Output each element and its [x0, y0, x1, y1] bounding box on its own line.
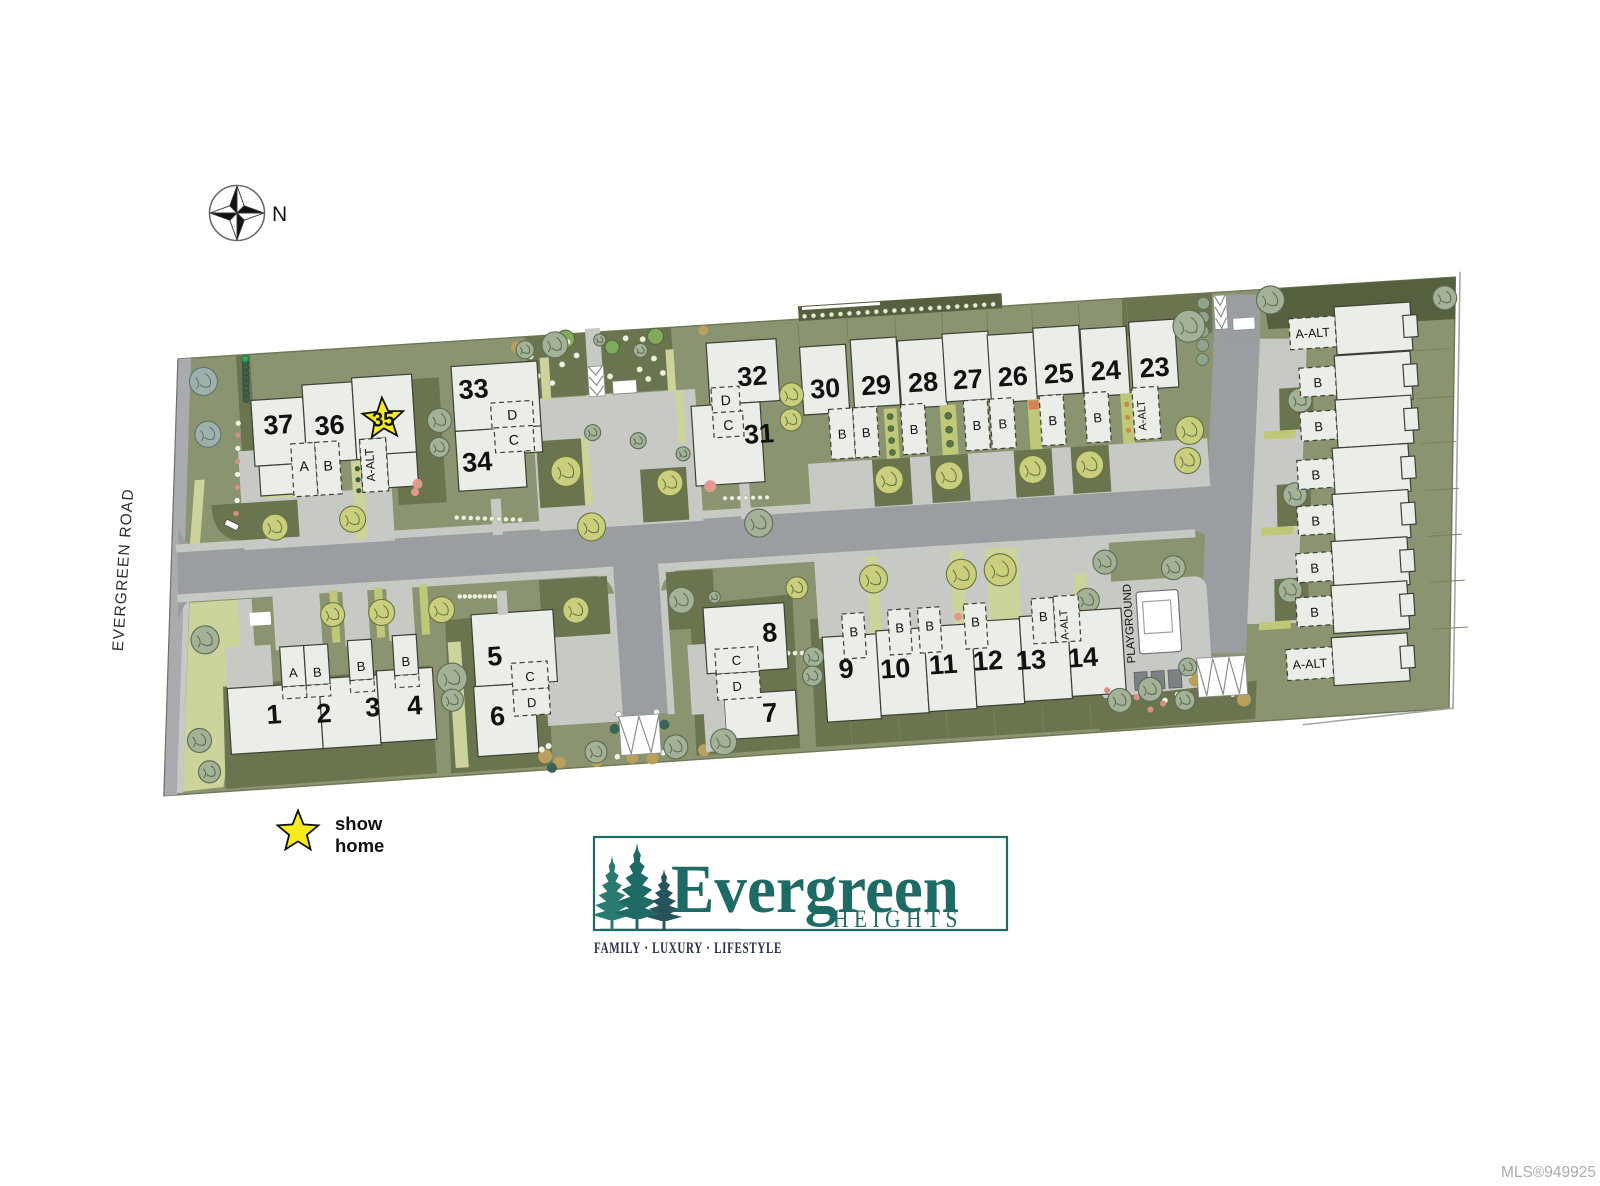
svg-text:28: 28	[907, 366, 939, 398]
svg-text:A-ALT: A-ALT	[362, 447, 378, 482]
svg-text:B: B	[401, 654, 411, 670]
svg-text:31: 31	[743, 418, 775, 450]
svg-text:6: 6	[489, 701, 506, 732]
svg-text:12: 12	[972, 645, 1004, 677]
svg-text:B: B	[1311, 513, 1321, 529]
svg-text:B: B	[998, 416, 1008, 432]
svg-text:A-ALT: A-ALT	[1292, 656, 1328, 672]
svg-text:D: D	[527, 695, 537, 711]
svg-text:D: D	[732, 679, 742, 695]
svg-text:B: B	[1311, 467, 1321, 483]
svg-text:N: N	[272, 203, 287, 226]
svg-text:7: 7	[761, 697, 778, 728]
svg-text:B: B	[971, 614, 981, 630]
svg-text:B: B	[909, 422, 919, 438]
svg-text:10: 10	[879, 653, 911, 685]
svg-text:A-ALT: A-ALT	[1058, 609, 1072, 640]
svg-text:11: 11	[928, 649, 958, 681]
svg-text:B: B	[1048, 413, 1058, 429]
svg-text:26: 26	[997, 361, 1029, 393]
svg-text:1: 1	[265, 699, 282, 730]
svg-text:4: 4	[406, 690, 423, 721]
svg-text:C: C	[731, 653, 741, 669]
svg-text:B: B	[313, 664, 323, 680]
svg-text:show: show	[335, 813, 383, 834]
svg-text:5: 5	[486, 641, 503, 672]
svg-text:home: home	[335, 835, 384, 856]
svg-text:24: 24	[1090, 355, 1122, 387]
svg-text:25: 25	[1043, 358, 1075, 390]
svg-text:D: D	[720, 392, 731, 409]
svg-text:8: 8	[761, 617, 778, 648]
svg-text:C: C	[508, 431, 519, 448]
svg-text:B: B	[1314, 419, 1324, 435]
svg-text:A: A	[289, 665, 299, 681]
svg-text:B: B	[895, 620, 905, 636]
svg-text:B: B	[1310, 560, 1320, 576]
svg-text:A: A	[299, 458, 310, 475]
svg-text:B: B	[356, 659, 366, 675]
svg-text:FAMILY · LUXURY · LIFESTYLE: FAMILY · LUXURY · LIFESTYLE	[594, 940, 782, 957]
svg-text:30: 30	[809, 373, 841, 405]
svg-text:36: 36	[314, 410, 346, 442]
svg-text:13: 13	[1015, 644, 1047, 676]
svg-text:B: B	[849, 624, 859, 640]
svg-text:B: B	[837, 426, 847, 442]
svg-text:D: D	[507, 406, 518, 423]
svg-text:B: B	[1310, 605, 1320, 621]
svg-text:A-ALT: A-ALT	[1136, 400, 1150, 431]
svg-text:14: 14	[1067, 642, 1099, 674]
svg-text:35: 35	[372, 408, 396, 431]
svg-text:HEIGHTS: HEIGHTS	[833, 906, 963, 933]
svg-text:2: 2	[316, 698, 333, 729]
svg-text:B: B	[925, 618, 935, 634]
svg-text:MLS®949925: MLS®949925	[1501, 1164, 1596, 1181]
svg-text:23: 23	[1139, 352, 1171, 384]
svg-text:32: 32	[736, 360, 768, 392]
svg-text:B: B	[861, 425, 871, 441]
svg-text:B: B	[1093, 410, 1103, 426]
svg-text:B: B	[1313, 375, 1323, 391]
svg-text:A-ALT: A-ALT	[1295, 325, 1331, 341]
svg-text:37: 37	[262, 409, 294, 441]
svg-text:33: 33	[458, 373, 490, 405]
svg-text:C: C	[525, 669, 535, 685]
svg-text:B: B	[1038, 609, 1048, 625]
svg-text:3: 3	[364, 692, 381, 723]
svg-text:29: 29	[860, 369, 892, 401]
svg-text:B: B	[323, 457, 333, 474]
svg-text:34: 34	[461, 446, 493, 478]
svg-text:27: 27	[952, 364, 984, 396]
svg-text:C: C	[723, 417, 734, 434]
svg-text:B: B	[972, 418, 982, 434]
